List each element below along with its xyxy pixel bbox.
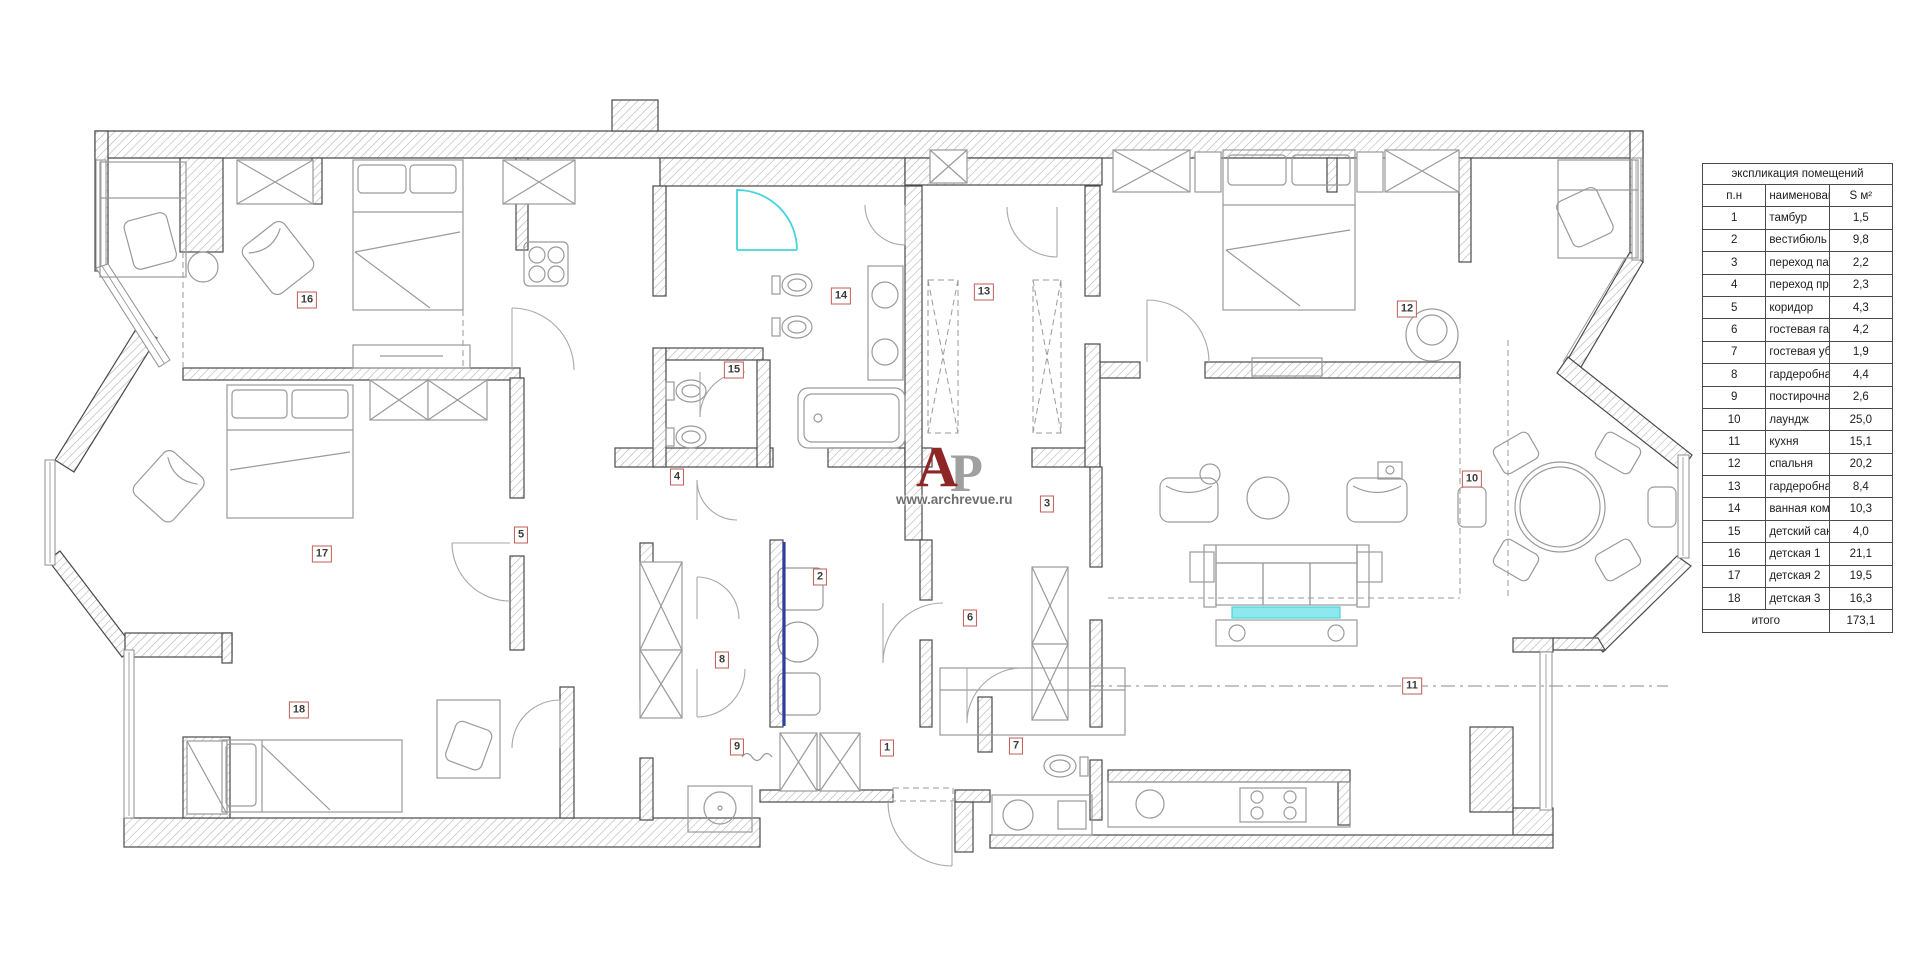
wardrobe-icon [820,733,860,791]
legend-row: 11кухня15,1 [1703,431,1893,453]
legend-cell-num: 6 [1703,319,1766,341]
legend-cell-area: 9,8 [1829,229,1892,251]
legend-cell-name: лаундж [1766,408,1829,430]
legend-col-area: S м² [1829,185,1892,207]
legend-row: 16детская 121,1 [1703,543,1893,565]
legend-cell-area: 25,0 [1829,408,1892,430]
legend-cell-name: детская 1 [1766,543,1829,565]
legend-cell-area: 1,9 [1829,341,1892,363]
legend-cell-area: 4,3 [1829,296,1892,318]
room-legend-table: экспликация помещений п.н наименование S… [1702,163,1893,633]
nightstand-icon [1357,152,1383,192]
wardrobe-icon [187,741,227,814]
furniture [100,150,1676,827]
door-arc [452,543,510,601]
legend-cell-area: 2,3 [1829,274,1892,296]
legend-cell-num: 10 [1703,408,1766,430]
legend-cell-num: 18 [1703,588,1766,610]
legend-row: 15детский санузел4,0 [1703,520,1893,542]
legend-col-name: наименование [1766,185,1829,207]
wardrobe-icon [928,280,958,433]
legend-cell-num: 8 [1703,364,1766,386]
legend-cell-name: вестибюль [1766,229,1829,251]
table-icon [524,242,568,286]
legend-title: экспликация помещений [1703,164,1893,185]
legend-cell-area: 15,1 [1829,431,1892,453]
legend-cell-num: 11 [1703,431,1766,453]
legend-row: 12спальня20,2 [1703,453,1893,475]
legend-cell-num: 13 [1703,476,1766,498]
desk-icon [1558,160,1638,258]
wardrobe-icon [1033,280,1061,433]
side-table-icon [188,252,218,282]
dining-table-icon [1458,430,1676,583]
outer-walls [48,100,1692,852]
legend-row: 5коридор4,3 [1703,296,1893,318]
legend-cell-name: гостевая уборная [1766,341,1829,363]
legend-cell-area: 10,3 [1829,498,1892,520]
chair-icon [444,719,494,771]
desk-icon [437,700,500,778]
room-number-label: 7 [1009,738,1023,755]
door-arc [697,577,739,619]
legend-cell-name: гостевая гардеробная [1766,319,1829,341]
legend-cell-name: коридор [1766,296,1829,318]
legend-cell-area: 2,6 [1829,386,1892,408]
room-number-label: 3 [1040,496,1054,513]
wardrobe-icon [780,733,817,791]
room-legend: экспликация помещений п.н наименование S… [1702,163,1893,633]
wardrobe-icon [640,650,682,718]
door-arc [700,372,745,417]
wardrobe-icon [640,562,682,650]
door-arc [865,205,905,245]
room-number-label: 9 [730,739,744,756]
legend-cell-area: 4,2 [1829,319,1892,341]
door-arc [967,668,1022,723]
wardrobe-icon [1385,150,1459,192]
armchair-icon [1347,478,1407,522]
legend-col-num: п.н [1703,185,1766,207]
sink-icon [1136,790,1164,818]
legend-row: 8гардеробная4,4 [1703,364,1893,386]
door-arc [512,308,574,370]
room-number-label: 6 [963,610,977,627]
nightstand-icon [1195,152,1221,192]
room-number-label: 13 [974,284,994,301]
legend-cell-num: 15 [1703,520,1766,542]
tv-icon [1378,462,1402,479]
sink-icon [992,795,1092,835]
door-arc [697,480,737,520]
room-number-label: 15 [724,362,744,379]
legend-cell-name: переход приватный [1766,274,1829,296]
door-arc [697,669,745,717]
legend-row: 6гостевая гардеробная4,2 [1703,319,1893,341]
legend-row: 2вестибюль9,8 [1703,229,1893,251]
wardrobe-icon [370,380,428,420]
legend-cell-name: детская 2 [1766,565,1829,587]
legend-cell-name: детский санузел [1766,520,1829,542]
legend-cell-name: кухня [1766,431,1829,453]
room-number-label: 12 [1397,301,1417,318]
door-arc [1007,207,1057,257]
legend-cell-name: постирочная [1766,386,1829,408]
coffee-table-icon [1247,477,1289,519]
legend-cell-name: переход парадный [1766,252,1829,274]
legend-cell-area: 4,4 [1829,364,1892,386]
legend-row: 3переход парадный2,2 [1703,252,1893,274]
legend-cell-num: 5 [1703,296,1766,318]
wardrobe-icon [428,380,487,420]
legend-cell-name: гардеробная [1766,364,1829,386]
interior-walls [180,158,1471,825]
legend-total-label: итого [1703,610,1830,632]
tv-console-icon [353,345,470,368]
legend-cell-num: 12 [1703,453,1766,475]
legend-row: 14ванная комната10,3 [1703,498,1893,520]
wardrobe-icon [1032,567,1068,644]
legend-cell-num: 17 [1703,565,1766,587]
room-number-label: 16 [297,292,317,309]
window-glazing [1678,455,1689,558]
wardrobe-icon [1032,644,1068,720]
door-arc [1147,300,1209,362]
legend-row: 18детская 316,3 [1703,588,1893,610]
bidet-icon [666,426,706,448]
bed-icon [222,740,402,812]
floor-lamp-icon [1200,464,1220,484]
chair-icon [123,211,178,271]
window-sill-highlight [1232,607,1340,618]
legend-row: 13гардеробная хозяйская8,4 [1703,476,1893,498]
legend-cell-num: 14 [1703,498,1766,520]
window-bench-icon [1216,620,1357,646]
legend-cell-area: 16,3 [1829,588,1892,610]
bed-icon [353,160,463,310]
armchair-icon [239,218,317,297]
room-number-label: 17 [312,546,332,563]
room-number-label: 4 [670,469,684,486]
bathtub-icon [798,388,905,448]
door-arc [512,700,560,748]
legend-cell-name: ванная комната [1766,498,1829,520]
kitchen-counter-icon [1108,782,1350,827]
floor-plan-drawing [0,0,1920,971]
legend-row: 7гостевая уборная1,9 [1703,341,1893,363]
legend-cell-num: 4 [1703,274,1766,296]
bidet-icon [772,316,812,338]
toilet-icon [772,274,812,296]
legend-row: 4переход приватный2,3 [1703,274,1893,296]
toilet-icon [1044,755,1088,777]
room-number-label: 8 [715,652,729,669]
windows [45,158,1689,818]
legend-cell-name: гардеробная хозяйская [1766,476,1829,498]
legend-cell-name: спальня [1766,453,1829,475]
room-number-label: 5 [514,527,528,544]
wardrobe-icon [1113,150,1190,192]
wardrobe-icon [503,160,575,204]
chair-icon [1554,185,1615,249]
room-number-label: 11 [1402,678,1422,695]
bed-icon [227,385,353,518]
armchair-icon [1160,478,1218,522]
legend-cell-num: 3 [1703,252,1766,274]
room-number-label: 1 [880,740,894,757]
legend-row: 10лаундж25,0 [1703,408,1893,430]
legend-cell-num: 2 [1703,229,1766,251]
entrance-door-arc [888,802,952,866]
room-number-label: 2 [813,569,827,586]
room-number-label: 10 [1462,471,1482,488]
door-arc [883,603,943,663]
armchair-icon [130,447,207,525]
legend-cell-area: 8,4 [1829,476,1892,498]
legend-cell-area: 1,5 [1829,207,1892,229]
legend-row: 17детская 219,5 [1703,565,1893,587]
wardrobes [187,150,1459,814]
legend-row: 9постирочная2,6 [1703,386,1893,408]
side-table-icon [1190,552,1214,582]
wardrobe-icon [237,160,313,204]
legend-cell-num: 9 [1703,386,1766,408]
legend-cell-num: 7 [1703,341,1766,363]
legend-cell-num: 16 [1703,543,1766,565]
cyan-door [737,189,797,250]
room-number-label: 14 [831,288,851,305]
legend-cell-area: 4,0 [1829,520,1892,542]
legend-cell-area: 21,1 [1829,543,1892,565]
legend-cell-area: 19,5 [1829,565,1892,587]
legend-cell-name: тамбур [1766,207,1829,229]
legend-total-value: 173,1 [1829,610,1892,632]
legend-cell-area: 20,2 [1829,453,1892,475]
legend-cell-name: детская 3 [1766,588,1829,610]
window-glazing [1632,158,1641,260]
legend-cell-area: 2,2 [1829,252,1892,274]
wardrobe-icon [930,150,967,183]
room-number-label: 18 [289,702,309,719]
legend-row: 1тамбур1,5 [1703,207,1893,229]
legend-cell-num: 1 [1703,207,1766,229]
double-sink-icon [868,266,903,380]
floor-plan-page: 123456789101112131415161718 Р А www.arch… [0,0,1920,971]
